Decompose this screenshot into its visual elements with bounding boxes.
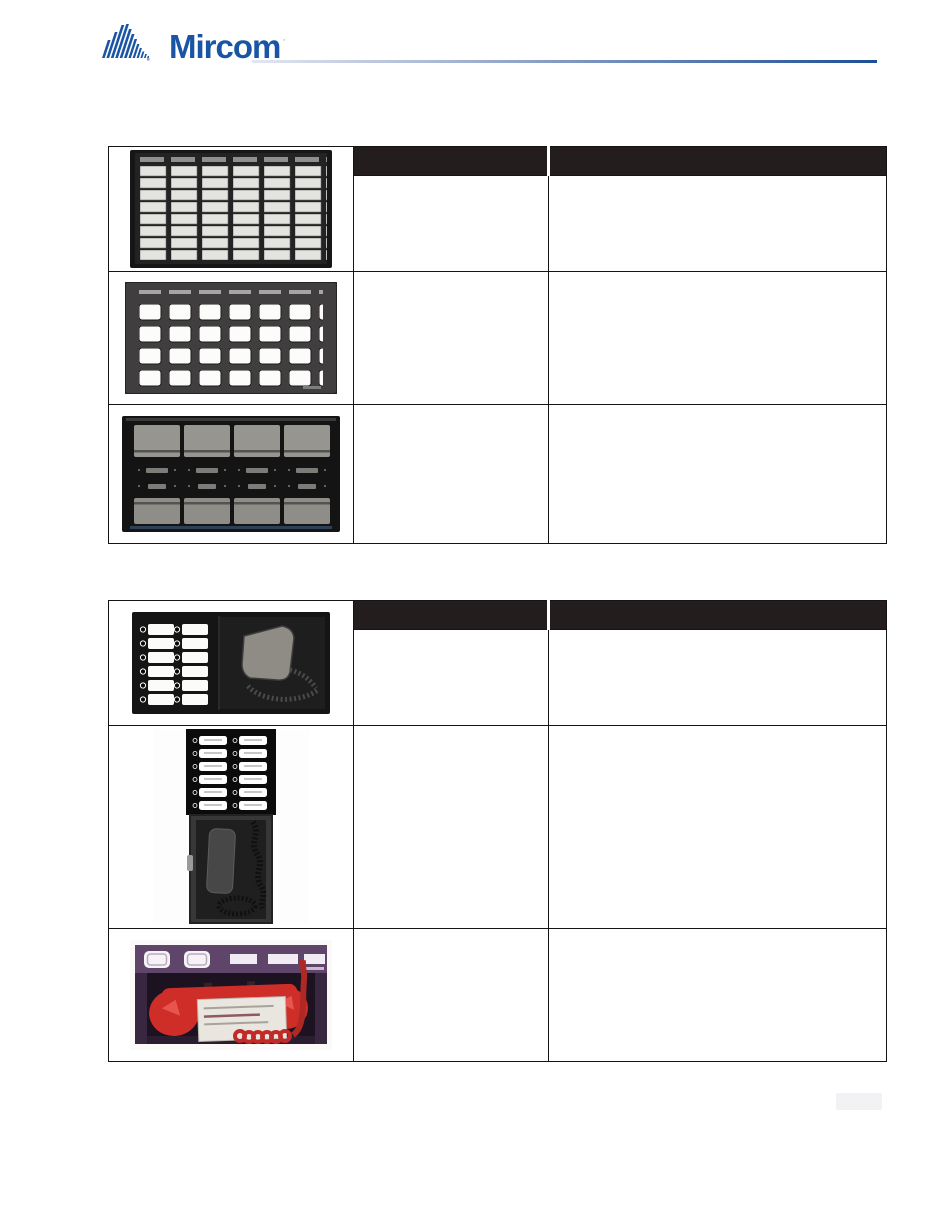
model-cell (354, 176, 549, 272)
header-divider-rule (252, 60, 877, 63)
product-image-cell (109, 929, 354, 1062)
logo-wordmark: Mircom (169, 31, 280, 62)
description-cell (549, 176, 887, 272)
product-image-cell (109, 272, 354, 405)
model-cell (354, 726, 549, 929)
product-image-cell (109, 147, 354, 272)
column-header-description (549, 147, 887, 176)
product-image-red-firefighter-telephone (109, 940, 353, 1050)
logo-trademark-mark: · (282, 35, 286, 46)
mircom-waves-icon (100, 18, 164, 62)
audio-and-telephone-table (108, 600, 887, 1062)
product-image-8-button-panel (109, 416, 353, 532)
description-cell (549, 726, 887, 929)
column-header-model (354, 601, 549, 630)
model-cell (354, 272, 549, 405)
column-header-model (354, 147, 549, 176)
product-image-cell (109, 601, 354, 726)
product-image-cell (109, 405, 354, 544)
description-cell (549, 929, 887, 1062)
column-header-description (549, 601, 887, 630)
document-page: Mircom · (0, 0, 950, 1229)
model-cell (354, 630, 549, 726)
model-cell (354, 929, 549, 1062)
product-image-cell (109, 726, 354, 929)
product-image-telephone-selector-unit (109, 729, 353, 925)
model-cell (354, 405, 549, 544)
annunciator-panels-table (108, 146, 887, 544)
description-cell (549, 272, 887, 405)
product-image-48-zone-annunciator (109, 150, 353, 268)
description-cell (549, 630, 887, 726)
product-image-paging-microphone-panel (109, 612, 353, 714)
product-image-24-zone-faceplate (109, 282, 353, 394)
page-number-tab (836, 1093, 882, 1110)
description-cell (549, 405, 887, 544)
mircom-logo: Mircom · (100, 18, 286, 62)
